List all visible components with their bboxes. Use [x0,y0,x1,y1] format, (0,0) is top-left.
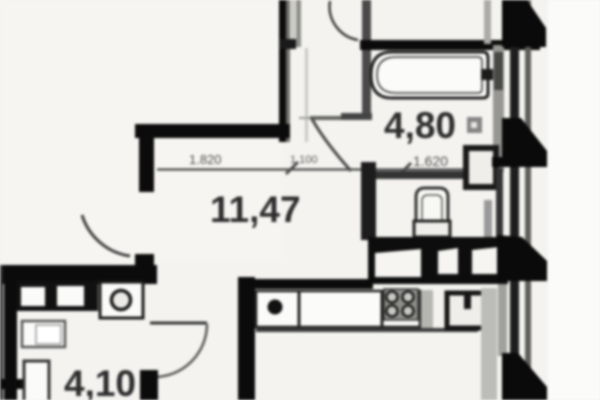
svg-text:1.820: 1.820 [189,152,222,167]
svg-text:1.100: 1.100 [290,154,318,166]
svg-text:4,10: 4,10 [64,363,136,400]
svg-text:1.620: 1.620 [413,153,448,169]
svg-text:4,80: 4,80 [384,105,456,146]
svg-text:11,47: 11,47 [210,189,301,230]
